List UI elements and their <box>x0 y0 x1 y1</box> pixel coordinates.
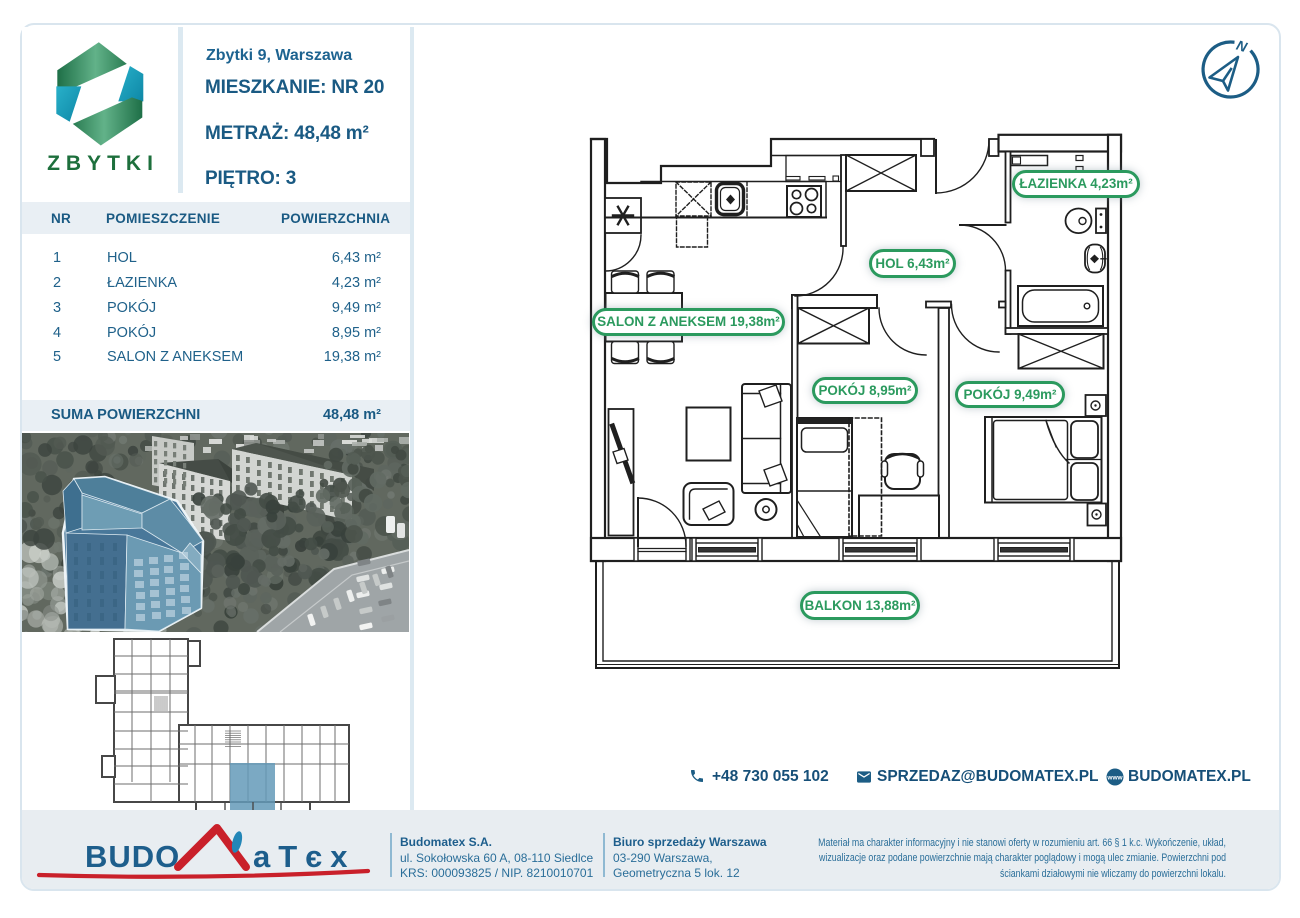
svg-text:N: N <box>1234 37 1249 56</box>
svg-text:BUDO: BUDO <box>85 839 180 874</box>
svg-text:aTєx: aTєx <box>253 839 356 874</box>
svg-text:ZBYTKI: ZBYTKI <box>47 152 159 175</box>
